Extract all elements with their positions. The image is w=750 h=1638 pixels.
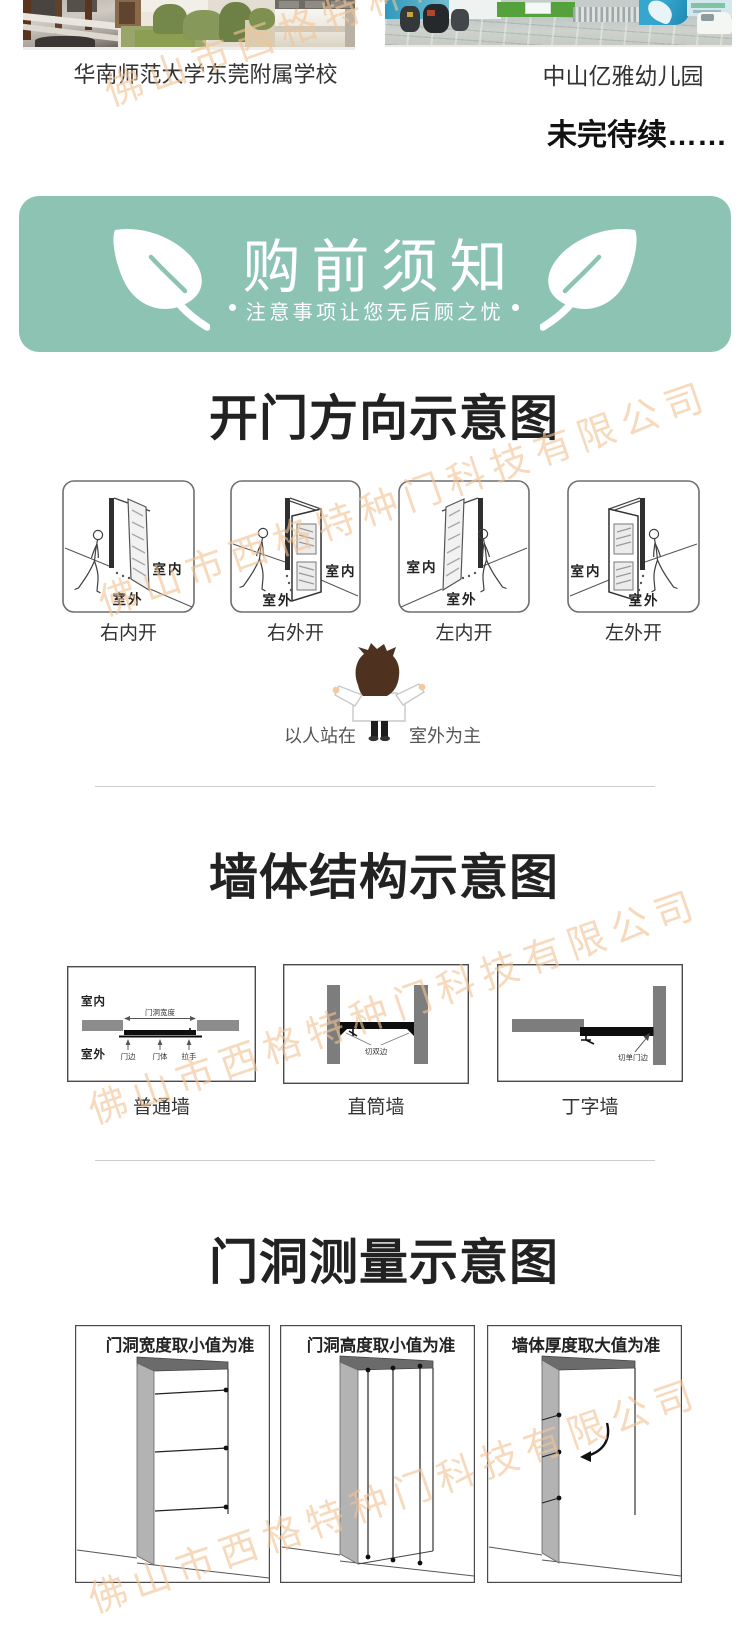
svg-text:室外: 室外 — [629, 592, 660, 608]
svg-text:切单门边: 切单门边 — [618, 1052, 648, 1062]
svg-text:墙体厚度取大值为准: 墙体厚度取大值为准 — [512, 1335, 661, 1355]
svg-text:门洞宽度: 门洞宽度 — [145, 1007, 175, 1017]
svg-text:拉手: 拉手 — [182, 1051, 197, 1061]
svg-text:室外: 室外 — [447, 591, 478, 607]
svg-text:门边: 门边 — [121, 1052, 136, 1061]
svg-text:门洞宽度取小值为准: 门洞宽度取小值为准 — [106, 1335, 255, 1355]
svg-text:室外: 室外 — [263, 592, 294, 608]
svg-text:门体: 门体 — [153, 1051, 168, 1061]
svg-text:室内: 室内 — [153, 561, 184, 577]
svg-text:室内: 室内 — [571, 563, 602, 579]
svg-text:室外: 室外 — [81, 1047, 106, 1061]
svg-text:室内: 室内 — [407, 559, 438, 575]
svg-text:室内: 室内 — [81, 994, 106, 1008]
svg-text:室内: 室内 — [326, 563, 357, 579]
svg-text:切双边: 切双边 — [365, 1047, 388, 1056]
svg-text:门洞高度取小值为准: 门洞高度取小值为准 — [307, 1335, 456, 1355]
svg-text:室外: 室外 — [113, 591, 144, 607]
